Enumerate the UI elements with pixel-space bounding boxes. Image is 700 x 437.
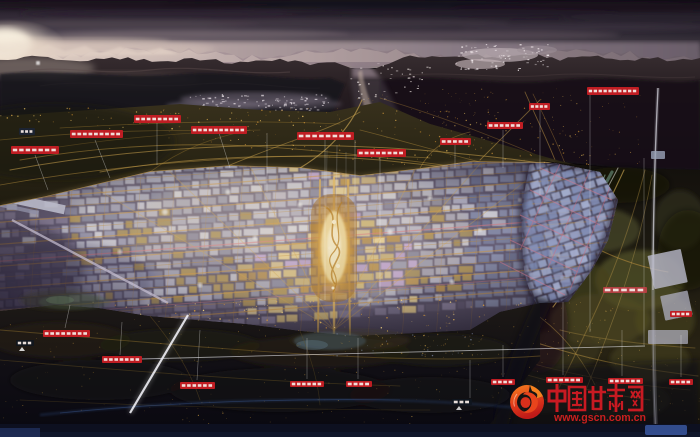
svg-text:www.gscn.com.cn: www.gscn.com.cn [553,412,646,424]
